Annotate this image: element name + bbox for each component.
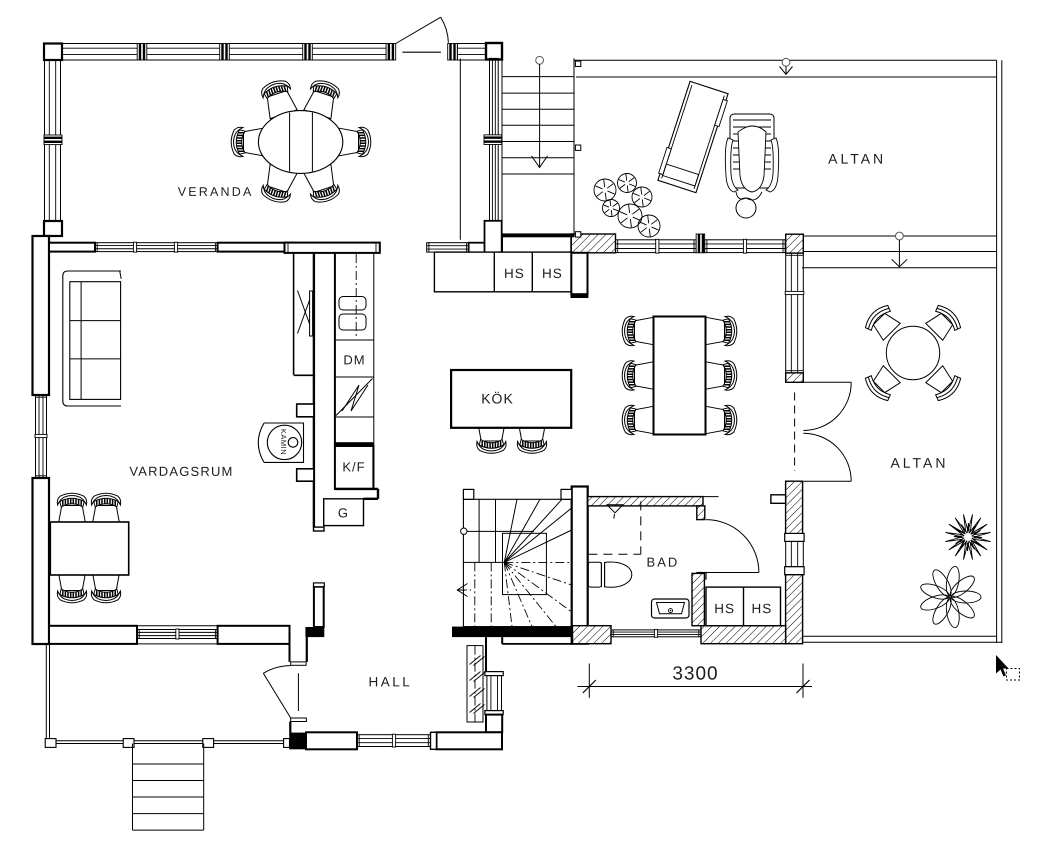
svg-text:HS: HS [714,601,735,616]
svg-text:KAMIN: KAMIN [279,429,288,455]
svg-text:VARDAGSRUM: VARDAGSRUM [129,464,233,479]
svg-text:ALTAN: ALTAN [828,151,886,167]
svg-text:VERANDA: VERANDA [178,185,254,199]
svg-text:K/F: K/F [342,459,365,474]
svg-text:G: G [338,505,349,520]
svg-text:3300: 3300 [672,664,718,685]
svg-text:BAD: BAD [647,555,680,570]
svg-text:HS: HS [752,601,773,616]
svg-text:KÖK: KÖK [481,390,514,406]
svg-text:HALL: HALL [368,674,412,689]
svg-text:HS: HS [504,266,525,281]
svg-text:DM: DM [343,352,365,367]
svg-text:ALTAN: ALTAN [890,455,948,471]
svg-text:HS: HS [542,266,563,281]
